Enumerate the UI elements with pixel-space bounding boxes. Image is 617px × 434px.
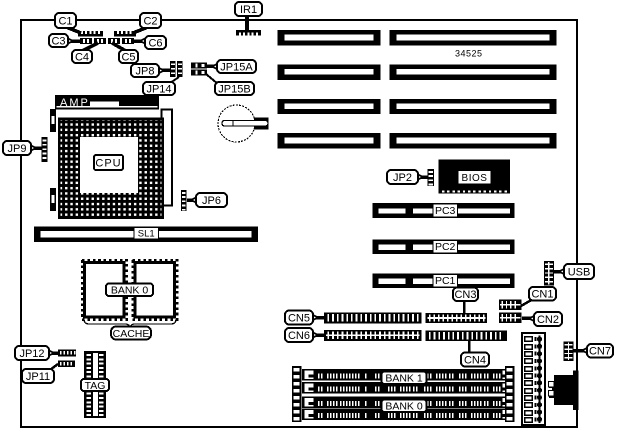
svg-text:CN3: CN3 [454,289,476,301]
svg-text:JP15B: JP15B [218,83,250,95]
svg-text:JP12: JP12 [19,348,44,360]
svg-text:JP11: JP11 [26,371,50,383]
svg-text:C5: C5 [121,51,135,63]
svg-text:CN2: CN2 [537,314,559,326]
svg-text:JP6: JP6 [202,195,221,207]
svg-text:C1: C1 [58,15,72,27]
svg-text:BANK 0: BANK 0 [385,401,423,413]
svg-text:CACHE: CACHE [113,328,150,340]
svg-text:USB: USB [568,266,591,278]
svg-text:CN4: CN4 [464,354,486,366]
svg-text:C6: C6 [148,37,162,49]
svg-text:PC2: PC2 [435,241,456,253]
svg-text:BIOS: BIOS [462,173,488,184]
svg-text:C4: C4 [75,51,89,63]
svg-text:BANK 1: BANK 1 [385,373,423,385]
svg-text:SL1: SL1 [138,229,155,240]
svg-text:CN7: CN7 [589,346,611,358]
svg-text:AMP: AMP [60,97,90,109]
svg-text:JP2: JP2 [393,172,412,184]
svg-text:CPU: CPU [95,157,121,169]
svg-text:JP8: JP8 [136,65,155,77]
svg-text:PC1: PC1 [435,275,456,287]
svg-text:BANK 0: BANK 0 [111,285,149,297]
svg-text:PC3: PC3 [435,205,456,217]
svg-text:CN6: CN6 [288,330,310,342]
svg-text:34525: 34525 [455,49,483,59]
svg-text:IR1: IR1 [240,4,257,16]
svg-text:CN1: CN1 [531,289,553,301]
svg-text:JP15A: JP15A [220,61,253,73]
svg-text:JP14: JP14 [146,83,171,95]
svg-text:C3: C3 [51,35,65,47]
svg-text:CN5: CN5 [288,312,310,324]
svg-text:JP9: JP9 [8,143,27,155]
svg-text:TAG: TAG [85,380,106,392]
svg-text:C2: C2 [143,15,157,27]
